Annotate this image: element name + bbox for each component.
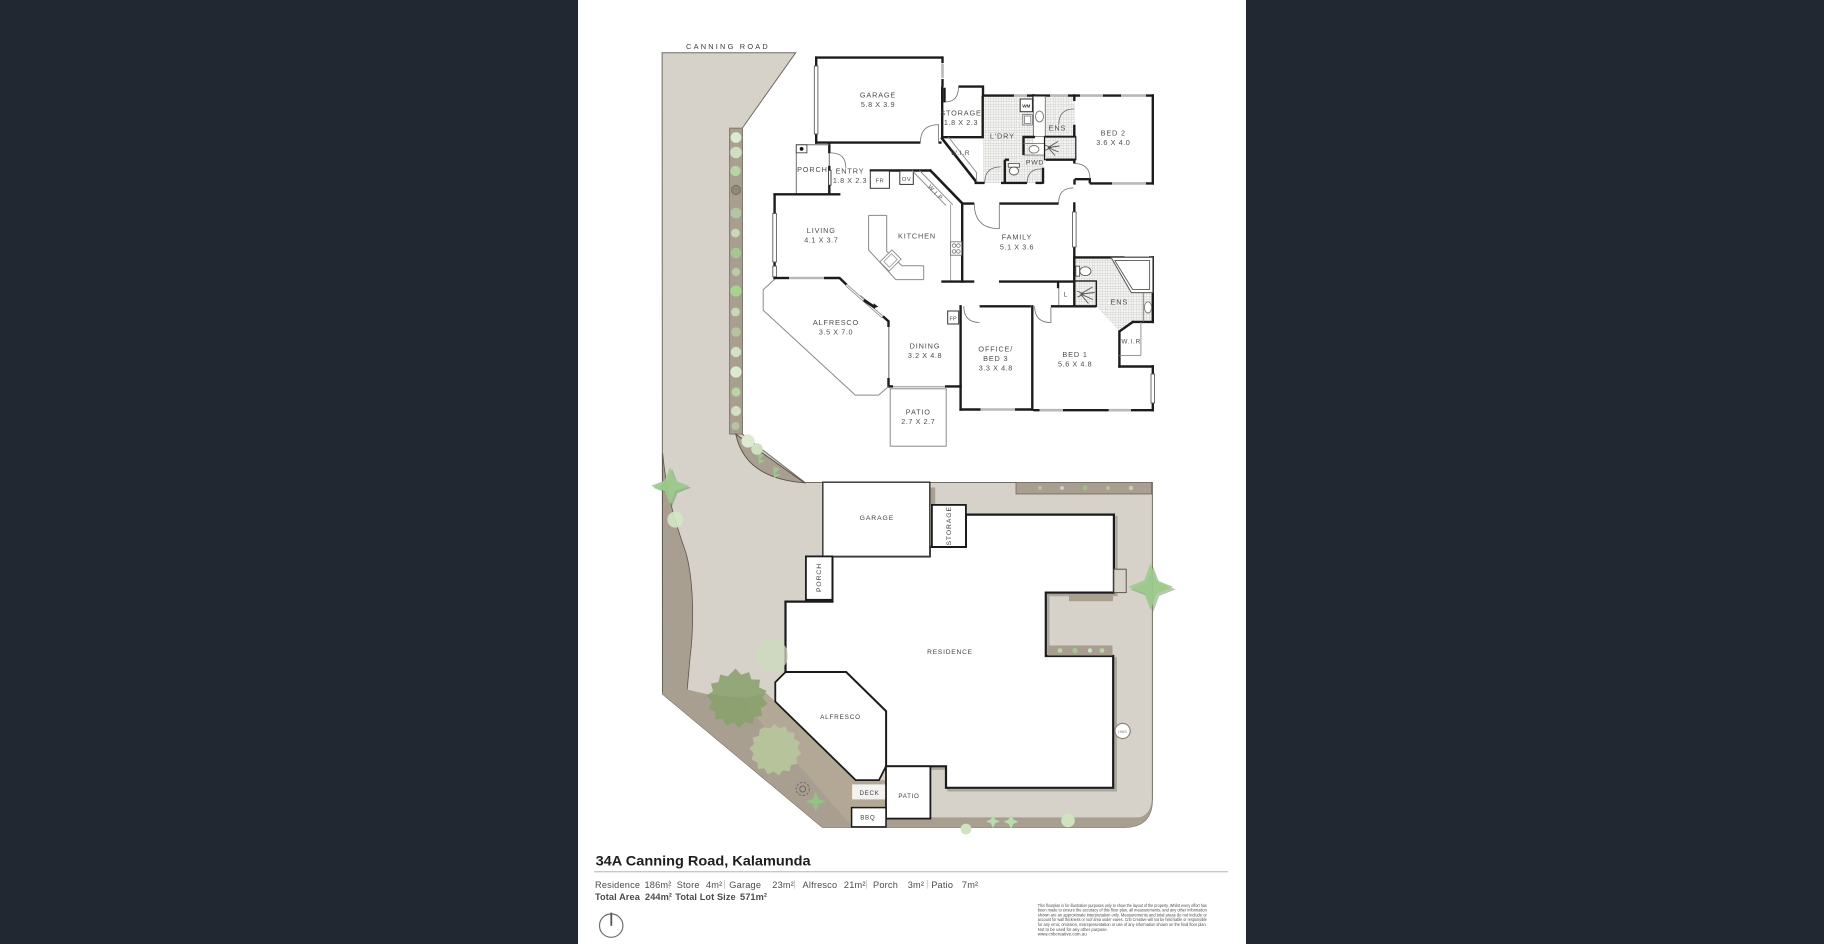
svg-text:23m²: 23m² <box>772 880 794 890</box>
svg-text:FAMILY: FAMILY <box>1002 233 1033 242</box>
svg-text:KITCHEN: KITCHEN <box>898 232 936 241</box>
svg-text:ALFRESCO: ALFRESCO <box>820 714 861 721</box>
svg-text:L'DRY: L'DRY <box>990 132 1015 141</box>
svg-text:5.1 X 3.6: 5.1 X 3.6 <box>1000 243 1034 252</box>
svg-text:PORCH: PORCH <box>797 165 828 174</box>
svg-text:FP: FP <box>950 316 957 322</box>
svg-text:OFFICE/: OFFICE/ <box>978 345 1013 354</box>
svg-text:21m²: 21m² <box>844 880 866 890</box>
svg-text:3.5 X 7.0: 3.5 X 7.0 <box>819 328 853 337</box>
svg-text:Total Lot Size: Total Lot Size <box>675 892 735 902</box>
svg-text:1.8 X 2.3: 1.8 X 2.3 <box>944 118 978 127</box>
svg-text:ENTRY: ENTRY <box>836 167 865 176</box>
svg-text:PORCH: PORCH <box>816 563 823 592</box>
svg-text:Store: Store <box>677 880 700 890</box>
svg-text:571m²: 571m² <box>740 892 767 902</box>
svg-text:www.cribcreative.com.au: www.cribcreative.com.au <box>1038 932 1088 937</box>
svg-text:STORAGE: STORAGE <box>940 109 982 118</box>
svg-text:PATIO: PATIO <box>898 793 919 800</box>
svg-text:DINING: DINING <box>910 342 941 351</box>
svg-text:PATIO: PATIO <box>906 408 931 417</box>
svg-text:W.I.R: W.I.R <box>1121 339 1141 346</box>
svg-text:3.2 X 4.8: 3.2 X 4.8 <box>908 351 942 360</box>
svg-text:RESIDENCE: RESIDENCE <box>927 649 973 656</box>
svg-text:3.3 X 4.8: 3.3 X 4.8 <box>979 363 1013 372</box>
svg-text:LIVING: LIVING <box>807 226 836 235</box>
svg-text:DECK: DECK <box>860 790 880 797</box>
svg-text:WM: WM <box>1022 103 1030 108</box>
svg-text:BED 1: BED 1 <box>1062 350 1087 359</box>
svg-text:5.6 X 4.8: 5.6 X 4.8 <box>1058 359 1092 368</box>
svg-text:2.7 X 2.7: 2.7 X 2.7 <box>901 417 935 426</box>
svg-text:BBQ: BBQ <box>860 815 875 822</box>
svg-text:3.6 X 4.0: 3.6 X 4.0 <box>1096 138 1130 147</box>
svg-text:Alfresco: Alfresco <box>803 880 838 890</box>
svg-text:Garage: Garage <box>729 880 761 890</box>
svg-text:ENS: ENS <box>1111 297 1129 306</box>
svg-text:Residence: Residence <box>595 880 640 890</box>
svg-text:Porch: Porch <box>873 880 898 890</box>
svg-text:3m²: 3m² <box>908 880 924 890</box>
svg-text:CANNING ROAD: CANNING ROAD <box>686 42 770 51</box>
svg-text:FR: FR <box>876 178 885 184</box>
svg-text:1.8 X 2.3: 1.8 X 2.3 <box>833 176 867 185</box>
svg-text:186m²: 186m² <box>645 880 672 890</box>
svg-text:OV: OV <box>902 177 911 183</box>
svg-text:4m²: 4m² <box>706 880 722 890</box>
svg-text:34A Canning Road, Kalamunda: 34A Canning Road, Kalamunda <box>596 854 811 869</box>
svg-text:244m²: 244m² <box>645 892 672 902</box>
svg-text:L: L <box>1064 291 1068 298</box>
svg-text:Patio: Patio <box>931 880 953 890</box>
svg-text:STORAGE: STORAGE <box>946 506 953 545</box>
svg-text:ENS: ENS <box>1049 124 1067 133</box>
svg-text:5.8 X 3.9: 5.8 X 3.9 <box>861 100 895 109</box>
svg-text:BED 3: BED 3 <box>983 354 1008 363</box>
svg-text:W.I.R: W.I.R <box>951 150 971 157</box>
svg-text:4.1 X 3.7: 4.1 X 3.7 <box>804 235 838 244</box>
svg-text:Total Area: Total Area <box>595 892 641 902</box>
svg-text:GARAGE: GARAGE <box>860 91 896 100</box>
svg-text:GARAGE: GARAGE <box>860 515 894 522</box>
svg-text:HWS: HWS <box>1118 730 1127 734</box>
svg-text:PWD: PWD <box>1026 160 1044 167</box>
svg-text:7m²: 7m² <box>962 880 978 890</box>
svg-text:BED 2: BED 2 <box>1101 128 1126 137</box>
svg-text:ALFRESCO: ALFRESCO <box>813 318 859 327</box>
